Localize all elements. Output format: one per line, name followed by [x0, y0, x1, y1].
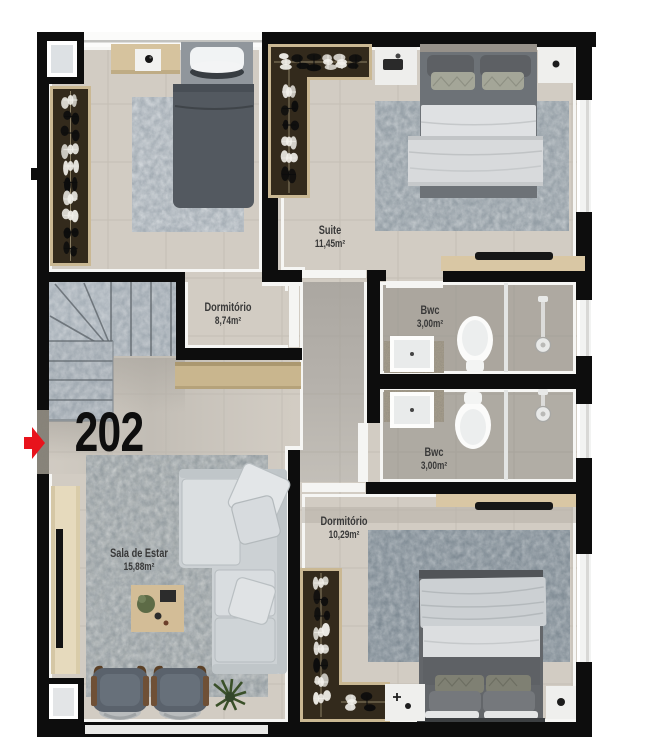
svg-text:3,00m²: 3,00m² [417, 318, 443, 330]
svg-text:10,29m²: 10,29m² [329, 529, 360, 541]
svg-text:202: 202 [75, 400, 144, 463]
svg-text:15,88m²: 15,88m² [124, 561, 155, 573]
svg-text:Bwc: Bwc [421, 304, 440, 317]
svg-text:Dormitório: Dormitório [320, 515, 367, 528]
svg-text:Suite: Suite [319, 224, 342, 237]
svg-text:Bwc: Bwc [425, 446, 444, 459]
svg-text:8,74m²: 8,74m² [215, 315, 241, 327]
svg-text:Dormitório: Dormitório [204, 301, 251, 314]
svg-text:11,45m²: 11,45m² [315, 238, 345, 250]
svg-text:3,00m²: 3,00m² [421, 460, 447, 472]
svg-text:Sala de Estar: Sala de Estar [110, 547, 168, 560]
